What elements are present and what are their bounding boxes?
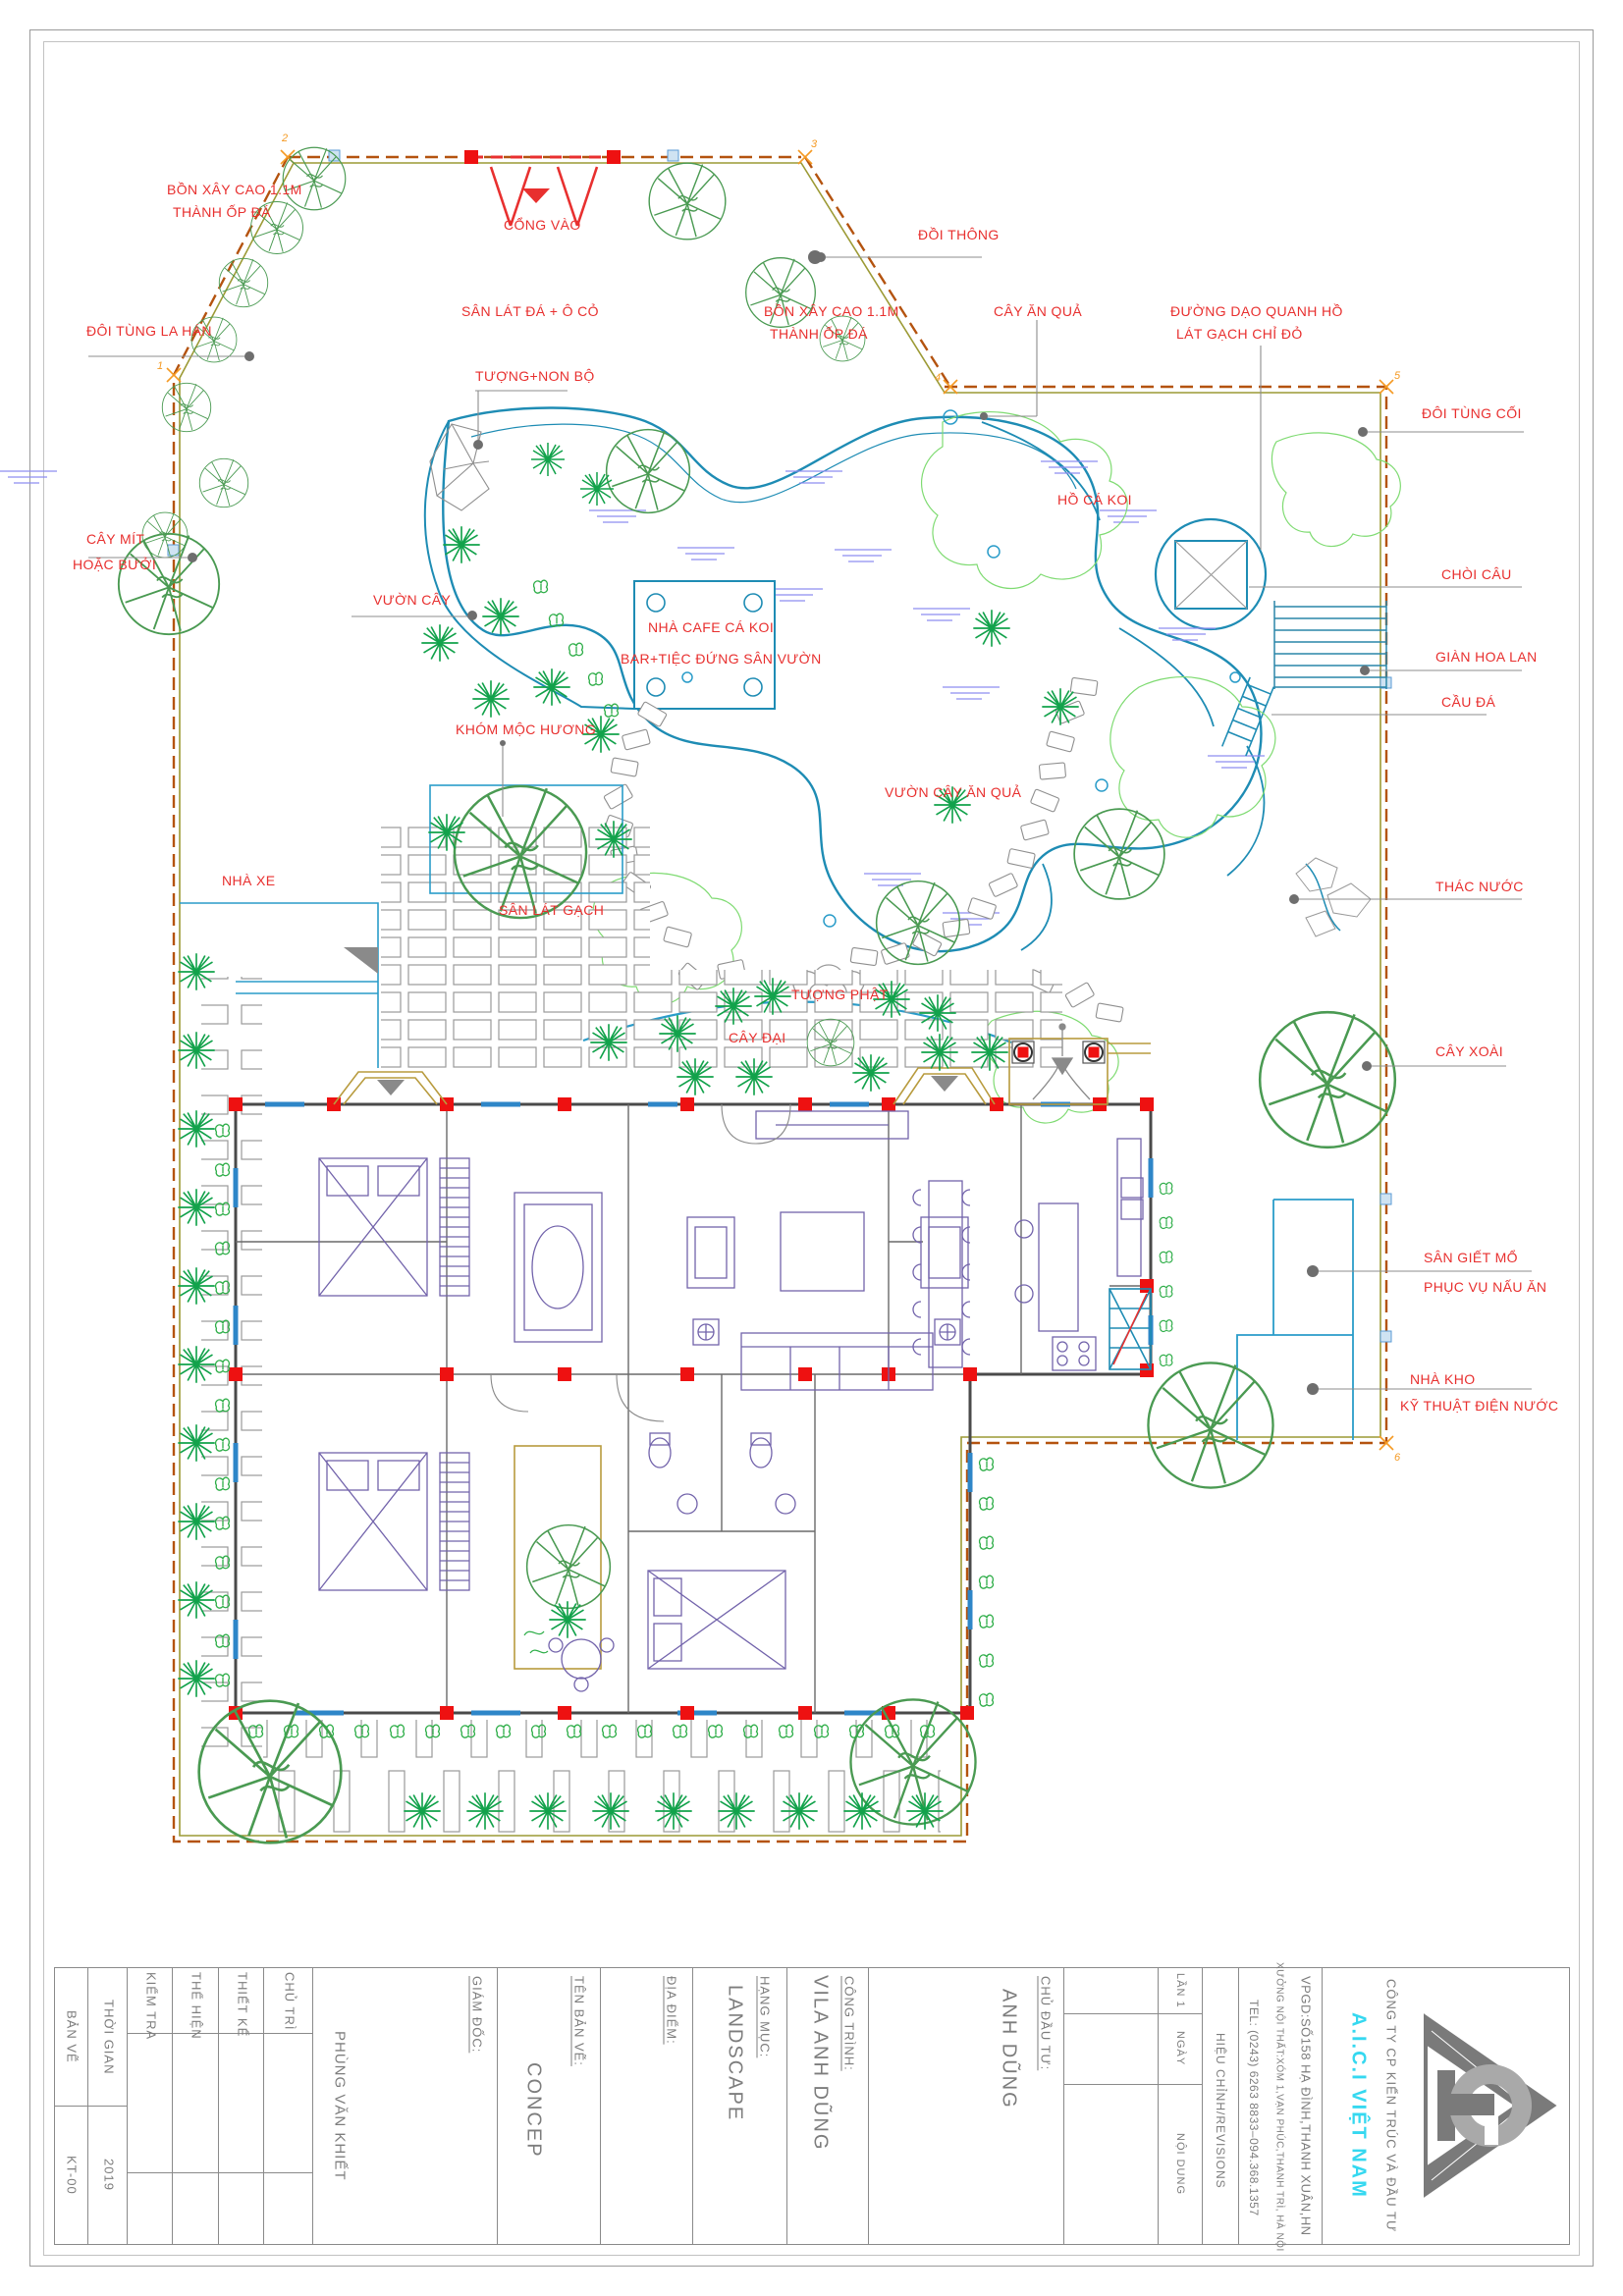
svg-text:4: 4 <box>935 372 941 384</box>
label-cay-mit: CÂY MÍT HOẶC BƯỞI <box>86 532 156 571</box>
tb-ngay: NGÀY <box>1160 2013 1201 2084</box>
title-block: BẢN VẼ KT-00 THỜI GIAN 2019 KIỂM TRA THỂ… <box>54 1967 1570 2245</box>
tb-lan: LẦN 1 <box>1160 1968 1201 2013</box>
waterfall-rocks <box>1296 858 1371 936</box>
tb-landscape: LANDSCAPE <box>715 1980 754 2127</box>
tb-nguoi: PHÙNG VĂN KHIẾT <box>322 1968 357 2244</box>
label-cau-da: CẦU ĐÁ <box>1441 695 1495 709</box>
label-bon-xay-1: BỒN XÂY CAO 1.1M THÀNH ỐP ĐÁ <box>167 183 302 219</box>
tb-the-hien: THỂ HIỆN <box>177 1972 216 2060</box>
label-san-lat-da: SÂN LÁT ĐÁ + Ô CỎ <box>461 304 599 318</box>
label-doi-tung-la-han: ĐÔI TÙNG LA HÁN <box>86 324 212 338</box>
tb-cong-ty: CÔNG TY CP KIẾN TRÚC VÀ ĐẦU TƯ <box>1377 1976 1406 2236</box>
leader-lines <box>88 252 1532 1389</box>
label-thac-nuoc: THÁC NƯỚC <box>1435 880 1524 893</box>
label-cay-an-qua: CÂY ĂN QUẢ <box>994 304 1082 318</box>
label-vuon-cay: VƯỜN CÂY <box>373 593 451 607</box>
tb-ban-ve: BẢN VẼ <box>57 1968 86 2106</box>
tb-kt00: KT-00 <box>57 2106 86 2244</box>
brick-yard-b <box>650 970 1062 1068</box>
tb-brand: A.I.C.I VIỆT NAM <box>1341 1998 1375 2214</box>
tb-hang-muc: HẠNG MỤC: <box>750 1976 780 2094</box>
fishing-hut <box>1175 541 1247 609</box>
stone-bridge <box>1222 677 1274 756</box>
label-khom-moc-huong: KHÓM MỘC HƯƠNG <box>456 722 596 736</box>
label-cay-xoai: CÂY XOÀI <box>1435 1044 1503 1058</box>
tb-dia-diem: ĐỊA ĐIỂM: <box>656 1976 687 2094</box>
drawing-sheet: 1 2 3 4 5 6 <box>0 0 1623 2296</box>
tb-nam: 2019 <box>92 2106 126 2244</box>
label-nha-kho: NHÀ KHO KỸ THUẬT ĐIỆN NƯỚC <box>1410 1372 1558 1413</box>
svg-text:6: 6 <box>1394 1452 1401 1464</box>
company-logo <box>1408 2007 1565 2204</box>
label-tuong-phat: TƯỢNG PHẬT <box>791 988 889 1001</box>
tb-xuong: XƯỞNG NỘI THẤT:XÓM 1,VẠN PHÚC,THANH TRÌ,… <box>1269 1970 1290 2243</box>
label-nha-xe: NHÀ XE <box>222 874 276 887</box>
svg-text:2: 2 <box>281 133 288 144</box>
label-doi-tung-coi: ĐÔI TÙNG CỐI <box>1422 406 1522 420</box>
svg-text:3: 3 <box>811 138 818 150</box>
house <box>229 1024 1154 1720</box>
tb-chu-tri: CHỦ TRÌ <box>269 1972 310 2060</box>
tb-thiet-ke: THIẾT KẾ <box>223 1972 262 2060</box>
label-cay-dai: CÂY ĐẠI <box>729 1031 786 1044</box>
label-nha-cafe: NHÀ CAFE CÁ KOI BAR+TIỆC ĐỨNG SÂN VƯỜN <box>648 620 822 666</box>
tb-anh-dung: ANH DŨNG <box>988 1980 1029 2117</box>
tb-concep: CONCEP <box>514 2022 552 2199</box>
label-duong-dao: ĐƯỜNG DẠO QUANH HỒ LÁT GẠCH CHỈ ĐỎ <box>1170 304 1343 341</box>
label-ho-ca-koi: HỒ CÁ KOI <box>1057 493 1132 507</box>
label-san-giet-mo: SÂN GIẾT MỔ PHỤC VỤ NẤU ĂN <box>1424 1251 1546 1294</box>
svg-text:1: 1 <box>157 360 163 372</box>
label-cong-vao: CỔNG VÀO <box>504 218 581 232</box>
svg-text:5: 5 <box>1394 370 1401 382</box>
site-plan-canvas: 1 2 3 4 5 6 <box>0 0 1623 2296</box>
tb-chu-dau-tu: CHỦ ĐẦU TƯ: <box>1030 1976 1061 2104</box>
rockery <box>430 424 489 510</box>
tb-giam-doc: GIÁM ĐỐC: <box>461 1976 493 2104</box>
slaughter-yard <box>1237 1200 1353 1440</box>
label-vuon-cay-an-qua: VƯỜN CÂY ĂN QUẢ <box>885 785 1021 799</box>
tb-cong-trinh: CÔNG TRÌNH: <box>835 1976 864 2104</box>
label-choi-cau: CHÒI CÂU <box>1441 567 1512 581</box>
tb-thoi-gian: THỜI GIAN <box>92 1968 126 2106</box>
label-san-lat-gach: SÂN LÁT GẠCH <box>499 903 604 917</box>
tb-ten-ban-ve: TÊN BẢN VẼ: <box>564 1976 595 2113</box>
orchid-trellis <box>1274 601 1386 689</box>
tb-kiem-tra: KIỂM TRA <box>132 1972 171 2060</box>
tb-vpgd: VPGD:SỐ158 HẠ ĐÌNH,THANH XUÂN,HN <box>1292 1968 1320 2244</box>
label-gian-hoa-lan: GIÀN HOA LAN <box>1435 650 1538 664</box>
tb-hieu-chinh: HIỆU CHỈNH/REVISIONS <box>1204 1988 1237 2233</box>
tb-noi-dung: NỘI DUNG <box>1160 2084 1201 2244</box>
label-doi-thong: ĐỒI THÔNG <box>918 228 1000 241</box>
label-tuong-non-bo: TƯỢNG+NON BỘ <box>475 369 595 383</box>
tb-tel: TEL: (0243) 6263 8833–094.368.1357 <box>1241 1978 1267 2238</box>
label-bon-xay-2: BỒN XÂY CAO 1.1M THÀNH ỐP ĐÁ <box>764 304 899 341</box>
